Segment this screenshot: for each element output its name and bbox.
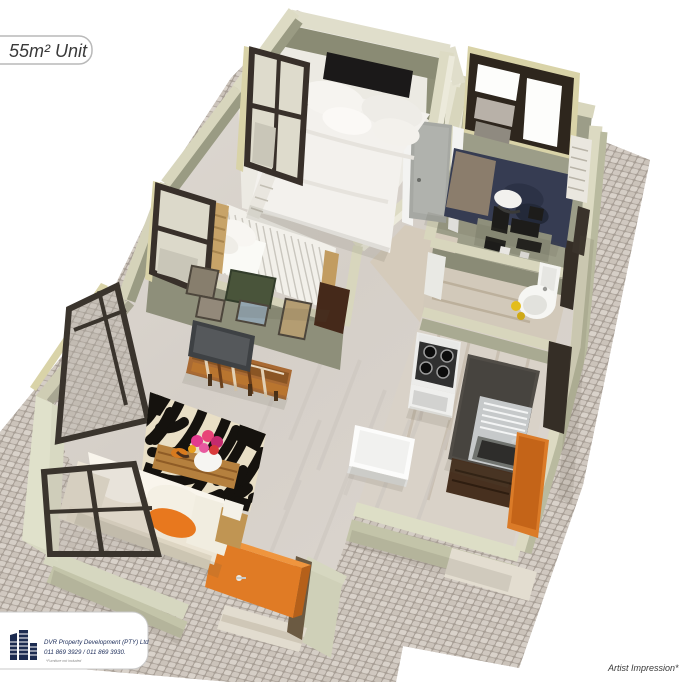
svg-text:011 869 3929 / 011 869 3930.: 011 869 3929 / 011 869 3930.: [44, 649, 126, 656]
svg-text:55m² Unit: 55m² Unit: [9, 41, 88, 61]
svg-text:Artist Impression*: Artist Impression*: [607, 663, 679, 673]
svg-text:*Furniture not included: *Furniture not included: [46, 659, 82, 663]
svg-text:DVR Property Development (PTY): DVR Property Development (PTY) Ltd: [44, 639, 149, 646]
